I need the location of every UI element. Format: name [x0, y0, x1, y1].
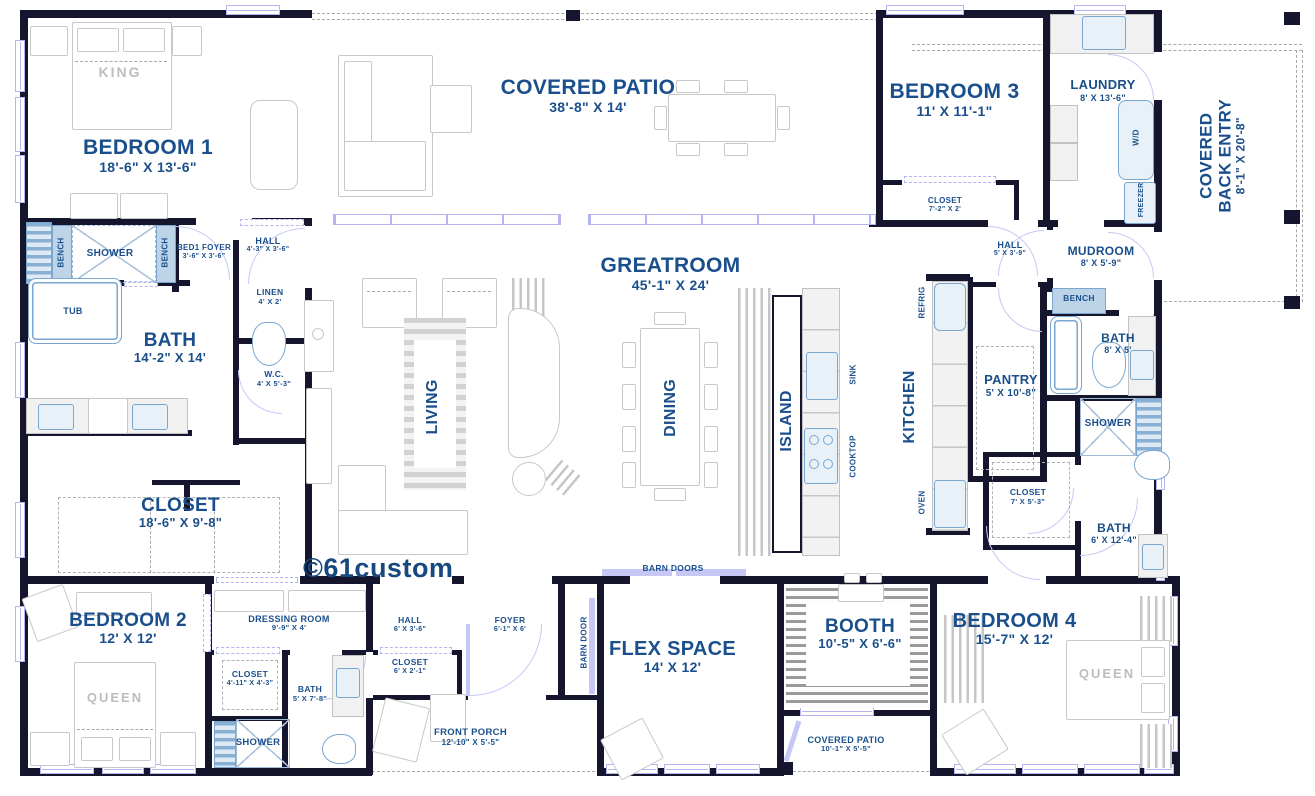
window: [15, 155, 25, 203]
front-door-leaf: [466, 624, 470, 696]
area-label-dining: DINING: [662, 363, 680, 453]
room-label-bath-hall: BATH 6' X 12'-4": [1062, 522, 1166, 546]
plan-element: 18'-6" X 9'-8": [78, 516, 283, 531]
room-label-bedroom4: BEDROOM 4 15'-7" X 12': [912, 610, 1117, 648]
bed-label-queen4: QUEEN: [1062, 666, 1152, 681]
dining-chair: [622, 426, 636, 452]
plan-element: [809, 459, 819, 469]
window: [1022, 764, 1078, 774]
furniture: [119, 737, 151, 761]
window: [15, 502, 25, 558]
window: [716, 764, 760, 774]
plan-element: BEDROOM 4: [912, 610, 1117, 632]
back-entry-post: [1284, 210, 1300, 224]
room-label-bedroom2: BEDROOM 2 12' X 12': [28, 610, 228, 647]
curved-sofa: [508, 308, 560, 458]
room-label-wc: W.C. 4' X 5'-3": [234, 370, 314, 388]
fixture-label-shower-bed2: SHOWER: [226, 738, 290, 749]
fixture-label-shower-hall: SHOWER: [1078, 418, 1138, 429]
queen-bed: [74, 662, 156, 768]
plan-element: 10'-5" X 6'-6": [792, 637, 928, 652]
plan-element: GREATROOM: [548, 254, 793, 278]
fixture-label-bench-right: BENCH: [162, 227, 171, 277]
wall-opening: [996, 282, 1038, 287]
patio-slider-window: [333, 214, 561, 225]
plan-element: BEDROOM 3: [862, 80, 1047, 104]
bifold-door: [240, 219, 304, 226]
fixture-label-refrig: REFRIG: [919, 277, 928, 327]
room-label-laundry: LAUNDRY 8' X 13'-6": [1048, 78, 1158, 103]
side-table: [545, 460, 582, 497]
plan-element: 5' X 10'-8": [952, 388, 1070, 399]
plan-element: 11' X 11'-1": [862, 104, 1047, 120]
patio-chair: [676, 143, 700, 156]
plan-element: BOOTH: [792, 616, 928, 637]
wall: [238, 438, 312, 444]
fixture-label-shower-master: SHOWER: [78, 248, 142, 259]
vanity-sink: [38, 404, 74, 430]
plan-element: 45'-1" X 24': [548, 278, 793, 294]
wall-opening: [1058, 220, 1104, 227]
plan-element: BATH: [1070, 332, 1166, 345]
bed-label-queen2: QUEEN: [75, 690, 155, 705]
furniture: [81, 737, 113, 761]
room-label-closet-master: CLOSET 18'-6" X 9'-8": [78, 495, 283, 531]
plan-element: BACK ENTRY: [1215, 56, 1234, 256]
porch-dash: [372, 771, 600, 772]
back-entry-post: [1284, 12, 1300, 25]
patio-sofa: [338, 55, 433, 197]
area-label-living: LIVING: [424, 362, 442, 452]
plan-element: 4'-3" X 3'-6": [226, 246, 310, 254]
patio-chair: [724, 80, 748, 93]
furniture: [344, 141, 426, 191]
plan-element: 14' X 12': [580, 660, 765, 676]
dining-chair: [704, 462, 718, 488]
plan-element: 3'-6" X 3'-6": [166, 253, 242, 261]
fixture-label-sink: SINK: [850, 349, 859, 399]
roof-dash-top: [312, 13, 878, 14]
window: [1084, 764, 1140, 774]
plan-element: 6' X 12'-4": [1062, 535, 1166, 545]
wall: [926, 274, 970, 281]
ottoman: [512, 462, 546, 496]
fixture-label-cooktop: COOKTOP: [850, 426, 859, 486]
room-label-covered-patio-rear: COVERED PATIO 10'-1" X 5'-5": [772, 735, 920, 753]
wall-opening: [630, 576, 720, 584]
plan-element: PANTRY: [952, 373, 1070, 388]
floor-plan: BEDROOM 1 18'-6" X 13'-6" COVERED PATIO …: [0, 0, 1315, 796]
plan-element: 8'-1" X 20'-8": [1234, 56, 1247, 256]
dash-line: [447, 291, 491, 292]
shower-tile: [1136, 398, 1162, 456]
plan-element: FLEX SPACE: [580, 638, 765, 660]
room-name: BEDROOM 1: [38, 136, 258, 160]
backentry-dash-bottom: [1164, 301, 1300, 302]
room-label-dressing-room: DRESSING ROOM 9'-9" X 4': [210, 614, 368, 632]
plan-element: BEDROOM 2: [28, 610, 228, 631]
dining-chair: [704, 384, 718, 410]
dining-chair: [622, 462, 636, 488]
bifold-door: [216, 647, 280, 654]
media-console: [306, 388, 332, 484]
vanity-sink: [132, 404, 168, 430]
patio-post: [779, 762, 793, 775]
window: [15, 97, 25, 152]
refrigerator: [934, 283, 966, 331]
room-label-linen: LINEN 4' X 2': [230, 288, 310, 306]
plan-element: CLOSET: [200, 670, 300, 680]
plan-element: HALL: [368, 616, 452, 626]
plan-element: CLOSET: [368, 658, 452, 668]
plan-element: MUDROOM: [1040, 245, 1162, 258]
room-label-pantry: PANTRY 5' X 10'-8": [952, 373, 1070, 399]
room-label-mudroom: MUDROOM 8' X 5'-9": [1040, 245, 1162, 269]
toilet: [322, 734, 356, 764]
plan-element: COVERED: [1196, 56, 1215, 256]
dash-line: [312, 19, 878, 20]
dash-line: [75, 61, 167, 62]
nightstand: [30, 732, 70, 766]
plan-element: 15'-7" X 12': [912, 632, 1117, 648]
room-label-closet-bed3: CLOSET 7'-2" X 2': [895, 197, 995, 214]
dining-chair: [654, 488, 686, 501]
pantry-shelves: [976, 346, 1034, 470]
plan-element: 8' X 5': [1070, 345, 1166, 355]
window: [15, 40, 25, 92]
fixture-label-oven: OVEN: [919, 477, 928, 527]
area-label-island: ISLAND: [778, 376, 796, 466]
room-label-booth: BOOTH 10'-5" X 6'-6": [792, 616, 928, 652]
rug: [1140, 596, 1172, 642]
room-label-hall-foyer: HALL 6' X 3'-6": [368, 616, 452, 633]
watermark: ©61custom: [303, 553, 453, 584]
plan-element: 12' X 12': [28, 631, 228, 647]
plan-element: 4' X 5'-3": [234, 380, 314, 388]
wall: [558, 583, 565, 700]
plan-element: 9'-9" X 4': [210, 624, 368, 632]
island-bar-rug: [738, 288, 772, 556]
room-label-bath-master: BATH 14'-2" X 14': [95, 330, 245, 366]
room-label-flex-space: FLEX SPACE 14' X 12': [580, 638, 765, 676]
dash-line: [367, 291, 411, 292]
room-label-foyer: FOYER 6'-1" X 6': [468, 616, 552, 633]
wall: [1014, 180, 1019, 225]
laundry-sink: [1082, 16, 1126, 50]
area-label-kitchen: KITCHEN: [901, 357, 919, 457]
room-label-greatroom: GREATROOM 45'-1" X 24': [548, 254, 793, 293]
furniture: [77, 28, 119, 52]
booth-stool: [844, 573, 860, 583]
dining-chair: [622, 342, 636, 368]
plan-element: 5' X 7'-8": [268, 695, 352, 703]
booth-table: [838, 584, 884, 602]
fixture-label-barn-doors: BARN DOORS: [628, 564, 718, 574]
window: [886, 5, 964, 15]
plan-element: [809, 435, 819, 445]
room-label-front-porch: FRONT PORCH 12'-10" X 5'-5": [388, 728, 553, 748]
plan-element: 8' X 5'-9": [1040, 258, 1162, 268]
patio-chair: [777, 106, 790, 130]
fixture-label-bench-mudroom: BENCH: [1054, 294, 1104, 304]
fixture-label-tub: TUB: [48, 306, 98, 316]
room-label-closet-foyer: CLOSET 6' X 2'-1": [368, 658, 452, 675]
plan-element: 7' X 5'-3": [978, 498, 1078, 506]
laundry-cabinet: [1050, 143, 1078, 181]
vanity-sink: [1142, 544, 1164, 570]
plan-element: 14'-2" X 14': [95, 351, 245, 366]
plan-element: LAUNDRY: [1048, 78, 1158, 93]
island-counter: [802, 288, 840, 556]
toilet: [1134, 450, 1170, 480]
patio-table: [430, 85, 472, 133]
wall-opening: [468, 695, 546, 700]
room-label-bedroom1: BEDROOM 1 18'-6" X 13'-6": [38, 136, 258, 175]
plan-element: FOYER: [468, 616, 552, 626]
plan-element: [823, 459, 833, 469]
nightstand: [160, 732, 196, 766]
plan-element: BATH: [95, 330, 245, 351]
sectional-sofa: [338, 510, 468, 555]
bed-bench: [70, 193, 118, 219]
dining-chair: [704, 426, 718, 452]
patio-rear-dash: [788, 771, 934, 772]
door-arc: [470, 624, 542, 696]
toilet: [252, 322, 286, 366]
bed-label-king: KING: [80, 64, 160, 80]
nightstand: [172, 26, 202, 56]
shower-tile: [26, 222, 52, 284]
kitchen-sink: [806, 352, 838, 400]
plan-element: COVERED PATIO: [468, 76, 708, 100]
window: [664, 764, 710, 774]
plan-element: 6'-1" X 6': [468, 626, 552, 634]
dressing-counter: [288, 590, 366, 612]
oven: [934, 480, 966, 528]
plan-element: HALL: [226, 236, 310, 246]
pedestal: [312, 328, 324, 340]
fixture-label-barn-door: BARN DOOR: [581, 602, 590, 682]
rug: [1140, 724, 1172, 768]
furniture: [1141, 683, 1165, 713]
room-label-covered-back-entry: COVERED BACK ENTRY 8'-1" X 20'-8": [1196, 56, 1248, 256]
dressing-counter: [214, 590, 284, 612]
room-label-covered-patio: COVERED PATIO 38'-8" X 14': [468, 76, 708, 115]
fixture-label-bench-left: BENCH: [58, 227, 67, 277]
wall: [777, 583, 784, 716]
plan-element: CLOSET: [895, 197, 995, 206]
window: [226, 5, 280, 15]
patio-chair: [724, 143, 748, 156]
room-label-bath-mudroom: BATH 8' X 5': [1070, 332, 1166, 356]
patio-slider-window: [588, 214, 876, 225]
wall: [152, 480, 240, 485]
plan-element: 6' X 2'-1": [368, 668, 452, 676]
room-label-bedroom3: BEDROOM 3 11' X 11'-1": [862, 80, 1047, 119]
dash-line: [77, 729, 153, 730]
wall-opening: [464, 576, 552, 584]
plan-element: 4' X 2': [230, 298, 310, 306]
plan-element: 7'-2" X 2': [895, 206, 995, 214]
vanity-tower: [88, 398, 128, 434]
room-dims: 18'-6" X 13'-6": [38, 160, 258, 176]
fixture-label-wd: W/D: [1133, 112, 1142, 162]
bifold-door: [904, 176, 996, 183]
wall: [457, 650, 462, 700]
nightstand: [30, 26, 68, 56]
furniture: [123, 28, 165, 52]
plan-element: 6' X 3'-6": [368, 626, 452, 634]
plan-element: CLOSET: [78, 495, 283, 516]
backentry-dash-right: [1296, 50, 1297, 302]
room-label-hall-bed1: HALL 4'-3" X 3'-6": [226, 236, 310, 254]
back-entry-post: [1284, 296, 1300, 309]
dining-chair: [654, 312, 686, 325]
bed-bench: [120, 193, 168, 219]
cased-opening: [216, 577, 298, 583]
dining-chair: [622, 384, 636, 410]
booth-stool: [866, 573, 882, 583]
plan-element: [823, 435, 833, 445]
dining-chair: [704, 342, 718, 368]
plan-element: BATH: [1062, 522, 1166, 535]
plan-element: 38'-8" X 14': [468, 100, 708, 116]
plan-element: 10'-1" X 5'-5": [772, 745, 920, 753]
laundry-cabinet: [1050, 105, 1078, 143]
fixture-label-freezer: FREEZER: [1138, 170, 1146, 230]
door-arc: [998, 288, 1042, 332]
plan-element: 12'-10" X 5'-5": [388, 739, 553, 748]
bifold-door: [380, 647, 452, 654]
room-label-bath-bed2: BATH 5' X 7'-8": [268, 685, 352, 703]
window: [15, 342, 25, 398]
window: [15, 606, 25, 662]
patio-post: [566, 10, 580, 21]
room-label-closet-hall: CLOSET 7' X 5'-3": [978, 488, 1078, 506]
cooktop: [804, 428, 838, 484]
dash-line: [1302, 50, 1303, 302]
plan-element: 8' X 13'-6": [1048, 93, 1158, 103]
